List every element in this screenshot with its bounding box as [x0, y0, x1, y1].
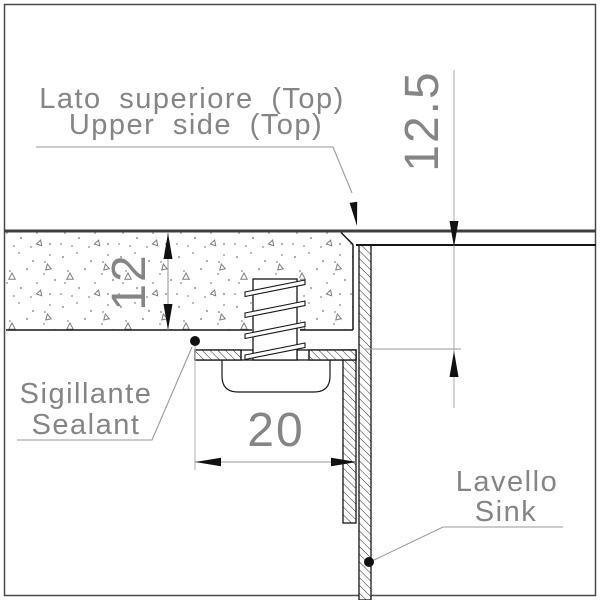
dim-text-12: 12 [103, 253, 156, 310]
sealant-dot [190, 336, 200, 346]
technical-drawing-sink-install-detail: 12 12.5 20 Lato superiore (Top) Upper si… [0, 0, 600, 600]
drawing-canvas: 12 12.5 20 Lato superiore (Top) Upper si… [0, 0, 600, 600]
sink-bowl-wall [359, 245, 371, 600]
fixing-screw [245, 279, 305, 360]
label-sealant-it: Sigillante [20, 378, 153, 410]
label-sealant-en: Sealant [32, 409, 141, 441]
sink-dot [364, 557, 374, 567]
label-top-surface-en: Upper side (Top) [69, 109, 323, 141]
sink-rim-skirt [343, 350, 356, 523]
label-sink-en: Sink [475, 496, 537, 528]
label-sink-it: Lavello [456, 466, 558, 498]
dim-text-12-5: 12.5 [396, 70, 449, 171]
dim-text-20: 20 [247, 404, 304, 457]
